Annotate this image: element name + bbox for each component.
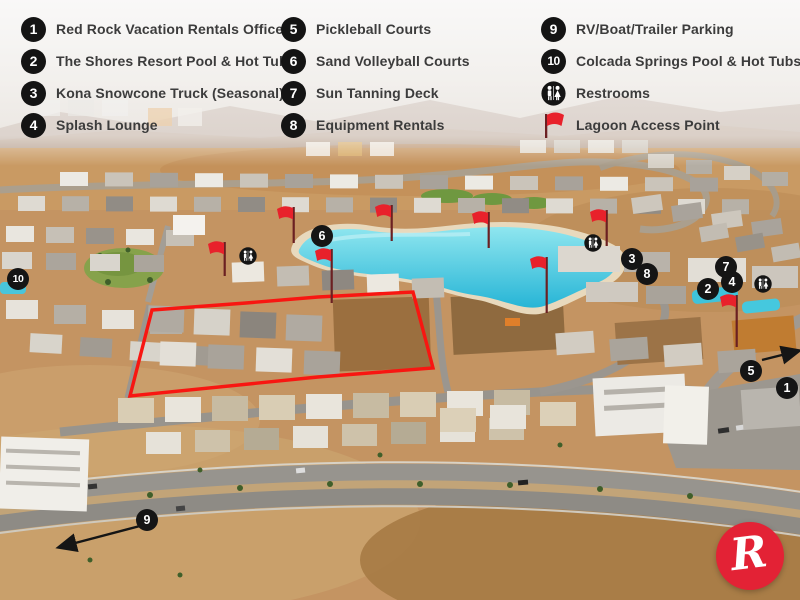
map-marker-10: 10 [7,268,29,290]
legend-number-badge-6: 6 [281,49,306,74]
legend-item-label: The Shores Resort Pool & Hot Tub [56,53,288,69]
legend-item-label: Red Rock Vacation Rentals Office [56,21,283,37]
legend-item-label: Lagoon Access Point [576,117,720,133]
legend-item-label: RV/Boat/Trailer Parking [576,21,734,37]
legend-item-label: Sun Tanning Deck [316,85,439,101]
map-marker-2: 2 [697,278,719,300]
lagoon-access-flag-icon [314,247,335,305]
lagoon-access-flag-icon [207,240,228,278]
legend-item: 1Red Rock Vacation Rentals Office [21,13,288,45]
lagoon-access-flag-icon [374,203,395,243]
red-flag-icon [541,112,566,139]
map-marker-6: 6 [311,225,333,247]
legend-item: 2The Shores Resort Pool & Hot Tub [21,45,288,77]
legend-item: 4Splash Lounge [21,109,288,141]
legend-column-2: 5Pickleball Courts6Sand Volleyball Court… [281,13,470,141]
legend-item: 6Sand Volleyball Courts [281,45,470,77]
brand-logo-letter: R [727,526,770,581]
legend-item: 5Pickleball Courts [281,13,470,45]
legend-item: 3Kona Snowcone Truck (Seasonal) [21,77,288,109]
legend-item-label: Colcada Springs Pool & Hot Tubs [576,53,800,69]
legend-item: 10Colcada Springs Pool & Hot Tubs [541,45,800,77]
legend-number-badge-7: 7 [281,81,306,106]
legend-number-badge-3: 3 [21,81,46,106]
map-marker-5: 5 [740,360,762,382]
restrooms-icon [541,80,566,107]
legend-number-badge-5: 5 [281,17,306,42]
legend-number-badge-4: 4 [21,113,46,138]
resort-map-image: 12345678910 [0,0,800,600]
map-marker-1: 1 [776,377,798,399]
lagoon-access-flag-icon [719,293,740,349]
lagoon-access-flag-icon [276,205,297,245]
legend-item-label: Equipment Rentals [316,117,445,133]
map-marker-9: 9 [136,509,158,531]
legend-item: Restrooms [541,77,800,109]
legend-item-label: Splash Lounge [56,117,158,133]
map-marker-8: 8 [636,263,658,285]
lagoon-access-flag-icon [471,210,492,250]
lagoon-access-flag-icon [529,255,550,315]
legend-item-label: Sand Volleyball Courts [316,53,470,69]
legend-item-label: Kona Snowcone Truck (Seasonal) [56,85,284,101]
legend-number-badge-8: 8 [281,113,306,138]
legend-number-badge-10: 10 [541,49,566,74]
map-restrooms-icon [239,247,257,265]
map-restrooms-icon [754,275,772,293]
brand-logo: R [716,522,784,590]
map-marker-7: 7 [715,256,737,278]
legend-number-badge-9: 9 [541,17,566,42]
legend-item: 7Sun Tanning Deck [281,77,470,109]
legend-item: 9RV/Boat/Trailer Parking [541,13,800,45]
legend-column-3: 9RV/Boat/Trailer Parking10Colcada Spring… [541,13,800,141]
legend-item: 8Equipment Rentals [281,109,470,141]
legend-item-label: Restrooms [576,85,650,101]
map-restrooms-icon [584,234,602,252]
legend-number-badge-1: 1 [21,17,46,42]
legend-item: Lagoon Access Point [541,109,800,141]
legend-column-1: 1Red Rock Vacation Rentals Office2The Sh… [21,13,288,141]
legend-item-label: Pickleball Courts [316,21,431,37]
legend-number-badge-2: 2 [21,49,46,74]
